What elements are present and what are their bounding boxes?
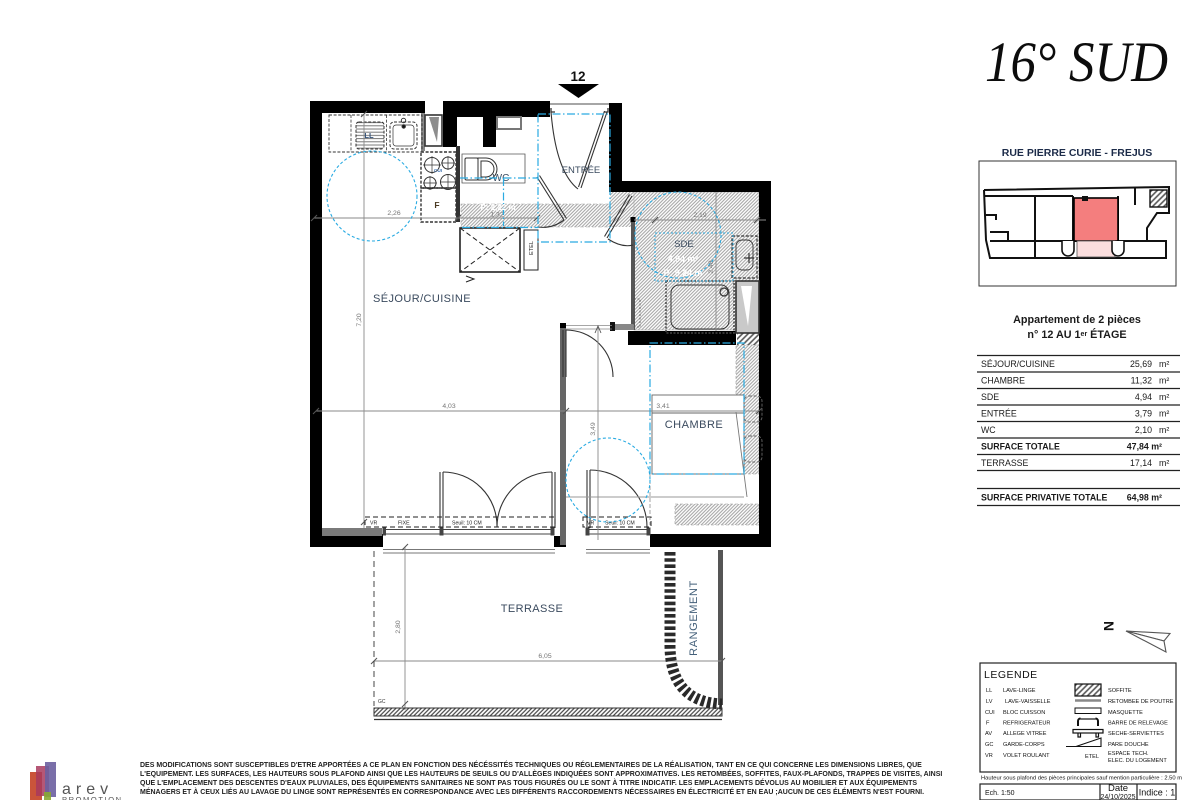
svg-text:m²: m² [1159,458,1169,468]
svg-text:64,98 m²: 64,98 m² [1127,493,1162,503]
svg-text:17,14: 17,14 [1130,458,1152,468]
svg-text:MÉNAGERS ET À CEUX LIÉS AU LAV: MÉNAGERS ET À CEUX LIÉS AU LAVAGE DU LIN… [140,787,924,796]
svg-text:LL: LL [364,131,374,140]
svg-text:VR: VR [985,753,993,759]
svg-text:P: 8,58 m: P: 8,58 m [557,193,595,203]
svg-text:m²: m² [1159,376,1169,386]
svg-text:CUI: CUI [434,168,443,174]
svg-text:47,84 m²: 47,84 m² [1127,442,1162,452]
svg-text:LAVE-LINGE: LAVE-LINGE [1003,688,1036,694]
svg-text:GC: GC [985,742,993,748]
svg-text:RUE PIERRE CURIE - FREJUS: RUE PIERRE CURIE - FREJUS [1002,147,1153,159]
svg-text:F: F [434,200,439,210]
svg-text:CHAMBRE: CHAMBRE [665,419,724,431]
svg-text:REFRIGERATEUR: REFRIGERATEUR [1003,721,1050,727]
svg-text:SDE: SDE [674,239,694,250]
svg-text:VR: VR [370,521,377,527]
svg-text:BARRE DE RELEVAGE: BARRE DE RELEVAGE [1108,721,1168,727]
svg-text:2,26: 2,26 [387,210,400,217]
svg-text:3,79: 3,79 [1135,409,1152,419]
svg-text:PROMOTION: PROMOTION [62,795,123,800]
svg-text:GARDE-CORPS: GARDE-CORPS [1003,742,1045,748]
svg-text:TERRASSE: TERRASSE [981,458,1029,468]
svg-text:24/10/2025: 24/10/2025 [1100,794,1135,800]
svg-text:DES MODIFICATIONS SONT SUSCEPT: DES MODIFICATIONS SONT SUSCEPTIBLES D'ET… [140,760,922,769]
svg-text:n° 12 AU 1er ÉTAGE: n° 12 AU 1er ÉTAGE [1027,328,1126,341]
svg-text:16° SUD: 16° SUD [985,31,1168,94]
svg-text:SOFFITE: SOFFITE [1108,688,1132,694]
svg-text:LEGENDE: LEGENDE [984,669,1038,681]
svg-text:ELEC. DU LOGEMENT: ELEC. DU LOGEMENT [1108,758,1167,764]
svg-text:P: 9,24 m: P: 9,24 m [664,268,703,278]
svg-text:P: 2,22 m: P: 2,22 m [480,203,515,212]
svg-text:LL: LL [986,688,992,694]
svg-text:2,80: 2,80 [395,620,402,633]
svg-text:Date: Date [1108,783,1128,794]
svg-text:SDE: SDE [981,392,999,402]
svg-text:3,41: 3,41 [656,403,669,410]
svg-text:VR: VR [587,521,594,527]
svg-text:SURFACE PRIVATIVE TOTALE: SURFACE PRIVATIVE TOTALE [981,493,1108,503]
svg-text:MASQUETTE: MASQUETTE [1108,710,1143,716]
svg-text:ENTRÉE: ENTRÉE [562,165,601,176]
svg-text:PARE DOUCHE: PARE DOUCHE [1108,742,1149,748]
svg-text:2,48: 2,48 [708,260,715,273]
svg-text:ESPACE TECH.: ESPACE TECH. [1108,751,1149,757]
svg-text:SÉJOUR/CUISINE: SÉJOUR/CUISINE [373,292,471,305]
svg-text:m²: m² [1159,392,1169,402]
svg-text:L'EQUIPEMENT. LES SURFACES, LE: L'EQUIPEMENT. LES SURFACES, LES HAUTEURS… [140,769,942,778]
svg-text:LAVE-VAISSELLE: LAVE-VAISSELLE [1005,699,1051,705]
svg-text:3,49: 3,49 [590,422,597,435]
svg-text:ENTRÉE: ENTRÉE [981,409,1017,419]
svg-text:WC: WC [981,425,996,435]
svg-text:m²: m² [1159,409,1169,419]
svg-text:12: 12 [570,69,585,84]
svg-text:Hauteur sous plafond des pièce: Hauteur sous plafond des pièces principa… [981,776,1182,782]
svg-text:ETEL: ETEL [529,241,535,255]
svg-text:F: F [986,721,990,727]
svg-text:CHAMBRE: CHAMBRE [981,376,1025,386]
svg-text:RANGEMENT: RANGEMENT [688,580,700,656]
svg-text:ETEL: ETEL [1085,754,1099,760]
svg-text:25,69: 25,69 [1130,359,1152,369]
svg-text:4,94 m²: 4,94 m² [668,254,698,264]
svg-text:Seuil: 10 CM: Seuil: 10 CM [452,521,482,527]
svg-text:FIXE: FIXE [398,521,410,527]
svg-text:SÉJOUR/CUISINE: SÉJOUR/CUISINE [981,359,1055,369]
svg-text:2,10: 2,10 [1135,425,1152,435]
svg-text:2,19: 2,19 [693,212,706,219]
svg-text:TERRASSE: TERRASSE [501,603,564,615]
svg-text:1,32: 1,32 [490,212,503,219]
svg-text:4,94: 4,94 [1135,392,1152,402]
svg-text:CUI: CUI [985,710,995,716]
svg-text:Indice : 1: Indice : 1 [1139,788,1176,798]
svg-text:6,05: 6,05 [538,653,551,660]
svg-text:Ech. 1:50: Ech. 1:50 [985,790,1015,797]
svg-text:QUE L'EMPLACEMENT DES DESCENTE: QUE L'EMPLACEMENT DES DESCENTES D'EAUX P… [140,778,917,787]
svg-text:VOLET ROULANT: VOLET ROULANT [1003,753,1050,759]
svg-text:AV: AV [985,731,992,737]
svg-text:4,03: 4,03 [442,403,455,410]
svg-text:SURFACE TOTALE: SURFACE TOTALE [981,442,1060,452]
svg-text:11,32: 11,32 [1131,376,1152,386]
svg-text:7,20: 7,20 [356,313,363,326]
svg-text:Appartement de 2 pièces: Appartement de 2 pièces [1013,314,1141,326]
svg-text:RETOMBEE DE POUTRE: RETOMBEE DE POUTRE [1108,699,1174,705]
svg-text:BLOC CUISSON: BLOC CUISSON [1003,710,1045,716]
svg-text:LV: LV [986,699,993,705]
svg-text:m²: m² [1159,359,1169,369]
svg-text:m²: m² [1159,425,1169,435]
svg-text:Seuil: 10 CM: Seuil: 10 CM [605,521,635,527]
svg-text:N: N [1101,621,1117,631]
svg-text:ALLEGE VITREE: ALLEGE VITREE [1003,731,1047,737]
svg-text:GC: GC [378,699,386,705]
svg-text:SECHE-SERVIETTES: SECHE-SERVIETTES [1108,731,1164,737]
